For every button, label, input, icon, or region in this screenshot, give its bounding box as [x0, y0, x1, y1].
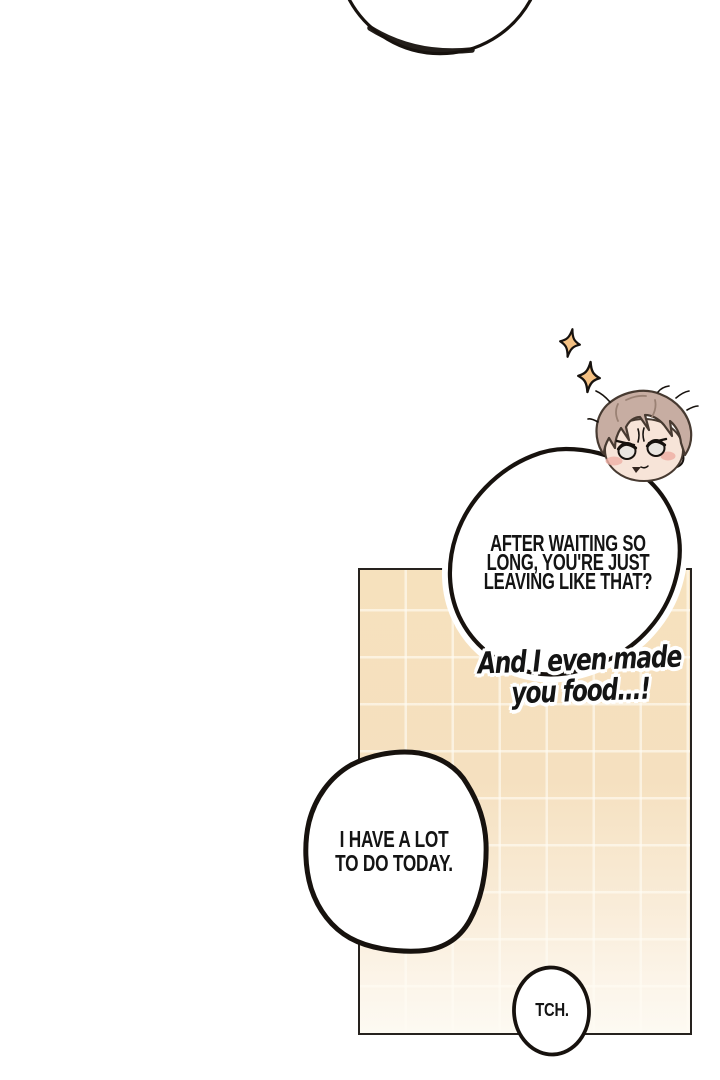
- speech-line: I HAVE A LOT: [289, 827, 499, 851]
- left-speech-text: I HAVE A LOT TO DO TODAY.: [289, 827, 499, 875]
- foreground-bubbles-layer: [0, 0, 720, 1080]
- sfx-text: TCH.: [495, 1001, 610, 1019]
- speech-line: TO DO TODAY.: [289, 851, 499, 875]
- manga-page: AFTER WAITING SO LONG, YOU'RE JUST LEAVI…: [0, 0, 720, 1080]
